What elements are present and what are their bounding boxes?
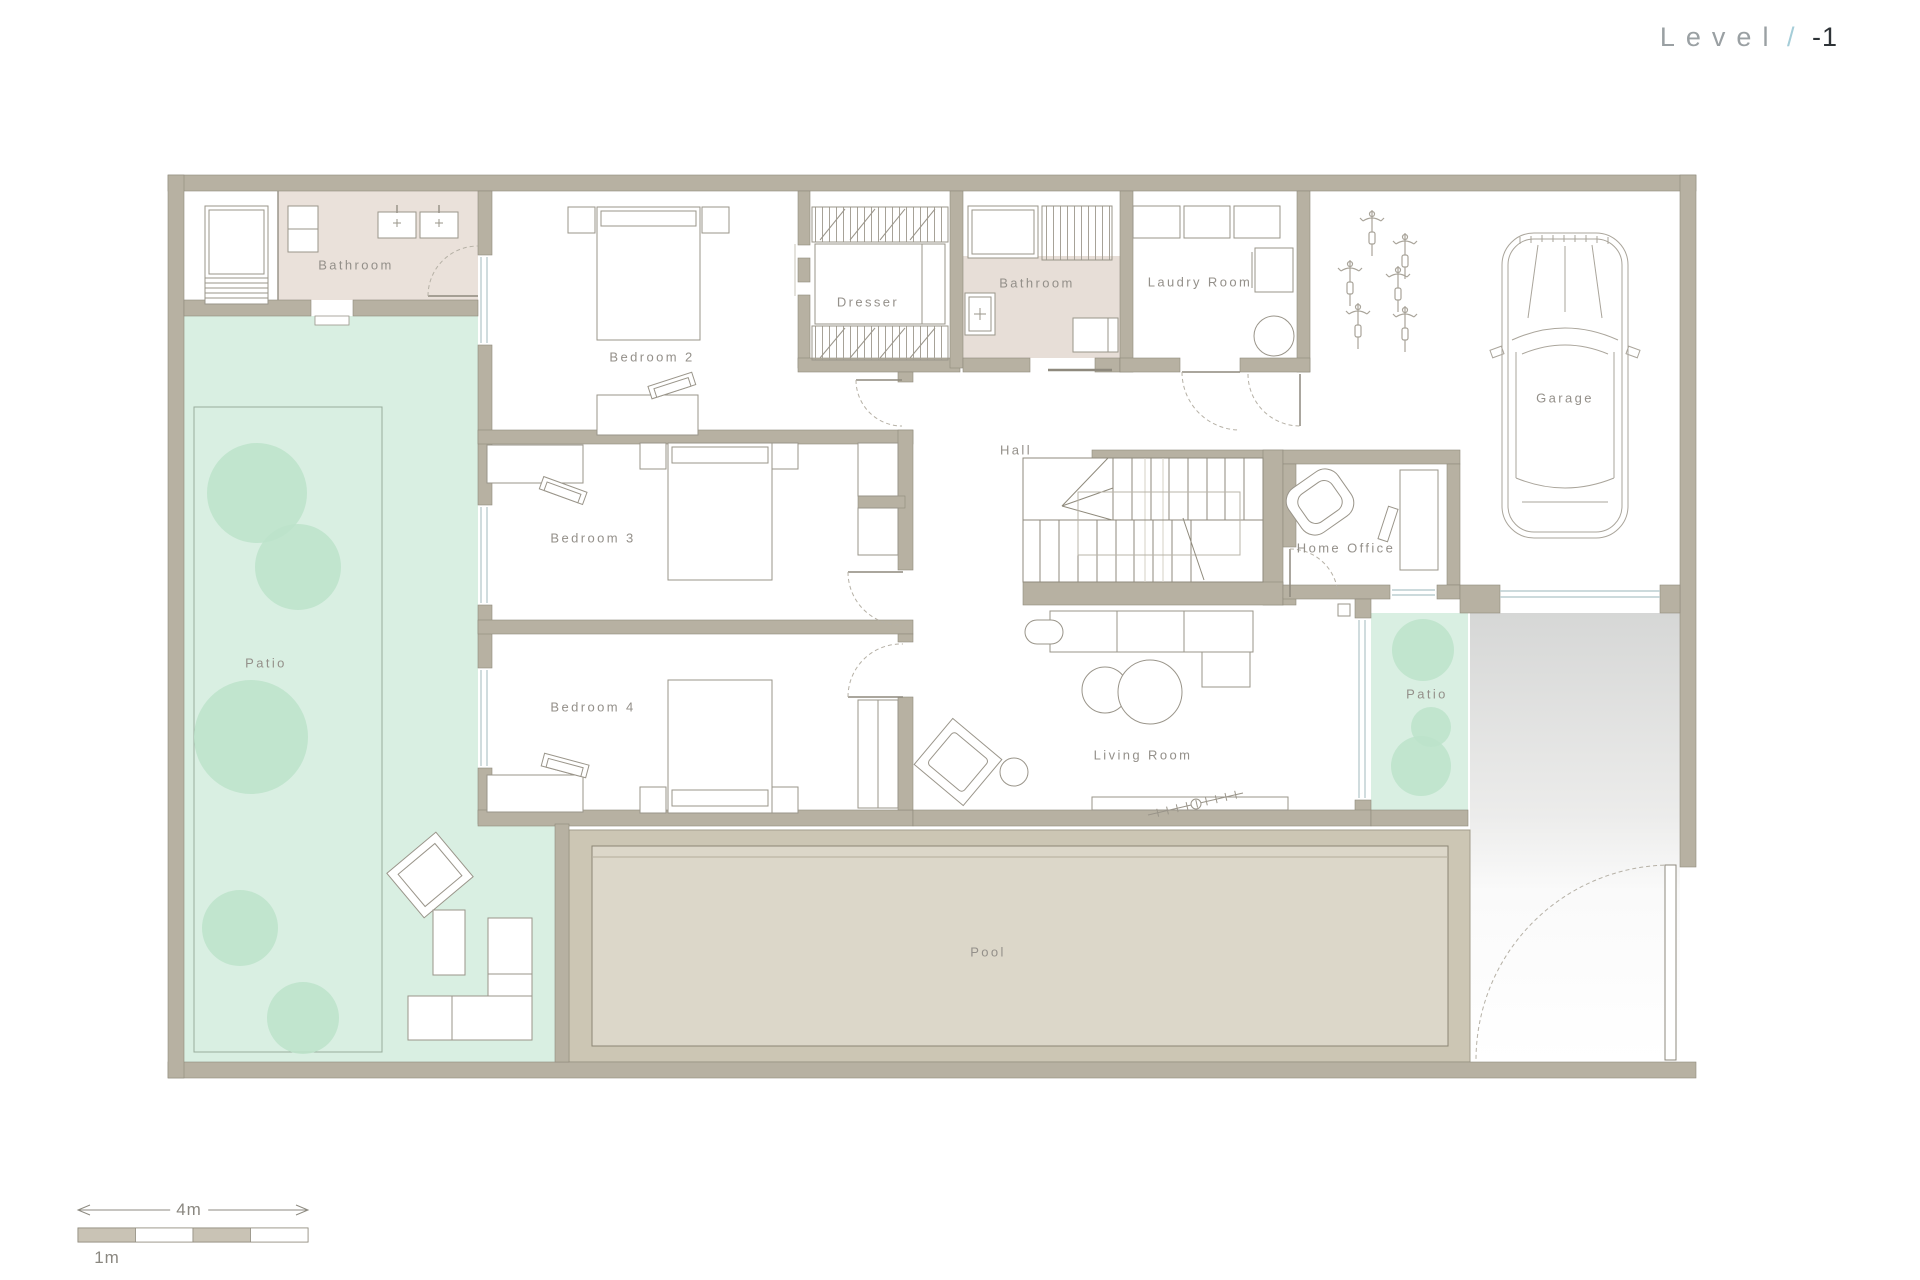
round-side-table [1000,758,1028,786]
room-label-laundry: Laudry Room [1148,275,1252,290]
nightstand [640,787,666,813]
laundry-basket [1254,316,1294,356]
driveway [1470,613,1680,1062]
room-label-bedroom-4: Bedroom 4 [550,700,635,715]
closet-island [815,244,945,324]
room-label-bedroom-2: Bedroom 2 [609,350,694,365]
dresser-cabinet-bedroom2 [597,395,698,435]
tree-icon [194,680,308,794]
tree-icon [1392,619,1454,681]
room-label-living-room: Living Room [1094,748,1193,763]
scale-unit-label: 1m [94,1248,120,1268]
nightstand [772,443,798,469]
coffee-table [1118,660,1182,724]
column [1338,604,1350,616]
nightstand [640,443,666,469]
media-console [1092,797,1288,810]
nightstand [568,207,595,233]
patio-table [433,910,465,975]
desk-bedroom4 [487,775,583,812]
shower-screen [1042,206,1112,260]
shower [205,206,268,304]
bathtub [968,206,1038,258]
floor-plan-drawing [0,0,1920,1280]
room-label-home-office: Home Office [1297,541,1395,556]
laundry-machines [1133,206,1280,238]
desk-bedroom3 [487,445,583,483]
desk-home-office [1400,470,1438,570]
pool-water [592,846,1448,1046]
room-label-pool: Pool [970,945,1006,960]
wardrobe-bedroom4 [858,700,898,808]
tree-icon [1391,736,1451,796]
room-label-garage: Garage [1536,391,1594,406]
toilet [1073,318,1118,352]
patio-door-step [315,316,349,325]
bathroom-cabinet [288,206,318,252]
closet-bedroom3 [858,508,898,555]
side-table [1025,620,1063,644]
nightstand [772,787,798,813]
nightstand [702,207,729,233]
room-label-bathroom-top: Bathroom [318,258,394,273]
closet-bedroom3 [858,443,898,496]
room-label-patio-left: Patio [245,656,287,671]
tree-icon [202,890,278,966]
room-label-patio-right: Patio [1406,687,1448,702]
laundry-appliance [1252,248,1293,292]
room-label-hall: Hall [1000,443,1032,458]
room-label-bedroom-3: Bedroom 3 [550,531,635,546]
staircase [1023,458,1263,582]
room-label-dresser: Dresser [837,295,899,310]
scale-total-label: 4m [170,1200,208,1220]
room-label-bathroom-middle: Bathroom [999,276,1075,291]
sink-bathroom-middle [965,293,995,335]
tree-icon [267,982,339,1054]
tree-icon [255,524,341,610]
gate-leaf [1665,865,1676,1060]
floor-plan-page: Level / -1 [0,0,1920,1280]
